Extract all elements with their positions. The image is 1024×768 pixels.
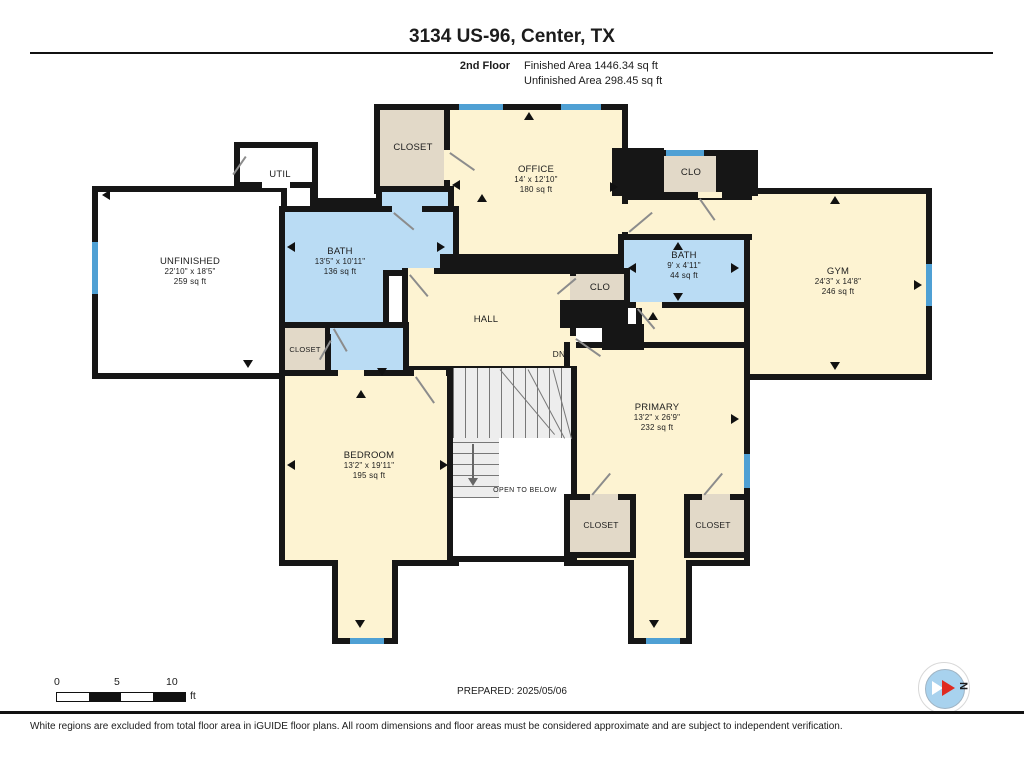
floor-label: 2nd Floor [430, 60, 510, 90]
dimension-arrow [287, 460, 295, 470]
window [744, 454, 750, 488]
door-opening [408, 268, 434, 274]
compass-north-label: N [957, 682, 969, 690]
dimension-arrow [477, 194, 487, 202]
window [646, 638, 680, 644]
label-util: UTIL [250, 169, 310, 180]
stair-direction-stem [472, 444, 474, 478]
unfinished-area: Unfinished Area 298.45 sq ft [524, 75, 662, 87]
dimension-arrow [102, 190, 110, 200]
label-bath-main: BATH 13'5" x 10'11" 136 sq ft [285, 246, 395, 277]
room-bedroom-ext [332, 560, 398, 644]
dimension-arrow [673, 242, 683, 250]
scale-tick-10: 10 [166, 676, 178, 688]
label-clo-top: CLO [659, 167, 723, 178]
label-hall: HALL [436, 314, 536, 325]
label-primary: PRIMARY 13'2" x 26'9" 232 sq ft [597, 402, 717, 433]
dimension-arrow [243, 360, 253, 368]
door-opening [338, 370, 364, 376]
window [561, 104, 601, 110]
label-clo-mid: CLO [570, 282, 630, 293]
scale-unit: ft [190, 690, 196, 702]
finished-area: Finished Area 1446.34 sq ft [524, 60, 662, 72]
scale-tick-0: 0 [54, 676, 60, 688]
scale-bar [56, 692, 186, 702]
door-opening [262, 182, 290, 188]
floor-plan-page: { "page": { "title": "3134 US-96, Center… [0, 0, 1024, 768]
window [666, 150, 704, 156]
wall-mass [310, 198, 382, 208]
dimension-arrow [649, 620, 659, 628]
door-opening [414, 370, 446, 376]
compass-red-arrow [942, 680, 955, 696]
dimension-arrow [437, 242, 445, 252]
label-closet-primary-1: CLOSET [566, 520, 636, 531]
window [926, 264, 932, 306]
scale-tick-5: 5 [114, 676, 120, 688]
dimension-arrow [452, 180, 460, 190]
dimension-arrow [356, 390, 366, 398]
label-office: OFFICE 14' x 12'10" 180 sq ft [476, 164, 596, 195]
label-unfinished: UNFINISHED 22'10" x 18'5" 259 sq ft [115, 256, 265, 287]
disclaimer-text: White regions are excluded from total fl… [30, 721, 1005, 732]
window [350, 638, 384, 644]
page-title: 3134 US-96, Center, TX [0, 26, 1024, 48]
label-open-to-below: OPEN TO BELOW [470, 485, 580, 496]
door-opening [444, 150, 450, 180]
door-opening [590, 494, 618, 500]
dimension-arrow [830, 196, 840, 204]
door-opening [702, 494, 730, 500]
dimension-arrow [731, 414, 739, 424]
label-closet-primary-2: CLOSET [678, 520, 748, 531]
door-opening [392, 206, 422, 212]
dimension-arrow [648, 312, 658, 320]
dimension-arrow [914, 280, 922, 290]
dimension-arrow [440, 460, 448, 470]
wall-mass [440, 254, 624, 272]
dimension-arrow [610, 182, 618, 192]
door-opening [622, 204, 628, 232]
label-closet-top: CLOSET [375, 142, 451, 153]
label-gym: GYM 24'3" x 14'8" 246 sq ft [778, 266, 898, 297]
dimension-arrow [830, 362, 840, 370]
window [92, 242, 98, 294]
label-bath-small: BATH 9' x 4'11" 44 sq ft [629, 250, 739, 281]
dimension-arrow [524, 112, 534, 120]
dimension-arrow [355, 620, 365, 628]
room-primary-ext [628, 560, 692, 644]
header-divider [30, 52, 993, 54]
wall-mass [310, 182, 318, 200]
door-opening [636, 302, 662, 308]
window [459, 104, 503, 110]
label-closet-left: CLOSET [277, 344, 333, 355]
label-bedroom: BEDROOM 13'2" x 19'11" 195 sq ft [309, 450, 429, 481]
wall-mass [612, 148, 664, 196]
footer-divider [0, 711, 1024, 714]
door-opening [698, 192, 722, 198]
dimension-arrow [377, 368, 387, 376]
area-summary: Finished Area 1446.34 sq ft Unfinished A… [524, 60, 662, 90]
label-dn: DN [546, 349, 572, 360]
floor-info: 2nd Floor Finished Area 1446.34 sq ft Un… [430, 60, 730, 90]
wall-mass [602, 324, 644, 350]
stairs-upper-flight [453, 368, 571, 438]
dimension-arrow [673, 293, 683, 301]
prepared-date: PREPARED: 2025/05/06 [384, 686, 640, 697]
